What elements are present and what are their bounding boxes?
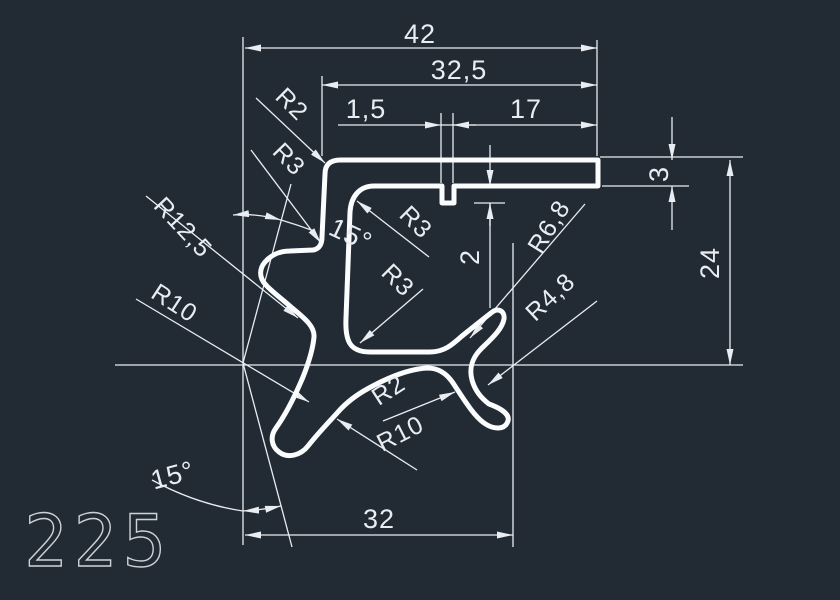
radius-web-fillet-label: R2 <box>367 369 411 411</box>
radius-leg-label: R10 <box>146 278 202 328</box>
radius-corner-top-label: R2 <box>270 82 314 126</box>
dimension-lines <box>245 48 730 535</box>
radius-labels: R2 R3 R3 R3 R12,5 R10 R6,8 R4,8 R2 R10 <box>146 82 581 457</box>
dim-rib-width-label: 1,5 <box>346 94 387 124</box>
dim-upper-width-label: 32,5 <box>431 55 488 85</box>
angle-arc-top <box>233 215 281 220</box>
leader-r3-cavity-bottom <box>360 289 423 343</box>
dim-top-angle-label: 15° <box>325 212 377 258</box>
dim-arm-thickness-label: 3 <box>644 166 674 182</box>
leader-r10-left <box>136 299 309 402</box>
radius-scoop-label: R12,5 <box>148 192 217 264</box>
radius-leaders <box>136 98 597 470</box>
radius-web-radius-label: R10 <box>372 410 428 457</box>
part-number-label: 225 <box>24 499 172 583</box>
angle-arc-top-tail <box>281 220 314 231</box>
drawing-svg: 42 32,5 1,5 17 3 24 2 32 15° 15° R2 R3 R… <box>0 0 840 600</box>
extension-lines <box>115 37 743 547</box>
dim-bottom-width-label: 32 <box>363 504 395 534</box>
dim-right-height-label: 24 <box>695 247 725 279</box>
dim-rib-depth-label: 2 <box>455 249 485 265</box>
dimension-labels: 42 32,5 1,5 17 3 24 2 32 15° 15° <box>148 19 725 534</box>
angle-arc-bottom <box>243 506 281 511</box>
radius-cavity-bottom-label: R3 <box>376 258 420 302</box>
dim-bottom-angle-label: 15° <box>148 455 198 495</box>
cad-viewport[interactable]: 42 32,5 1,5 17 3 24 2 32 15° 15° R2 R3 R… <box>0 0 840 600</box>
radius-hook-inner-label: R4,8 <box>520 268 581 327</box>
dim-overall-width-label: 42 <box>404 19 436 49</box>
radius-hook-outer-label: R6,8 <box>522 195 576 258</box>
radius-cavity-top-label: R3 <box>394 200 438 244</box>
angle-line-top <box>243 184 291 363</box>
dim-right-width-label: 17 <box>510 94 542 124</box>
